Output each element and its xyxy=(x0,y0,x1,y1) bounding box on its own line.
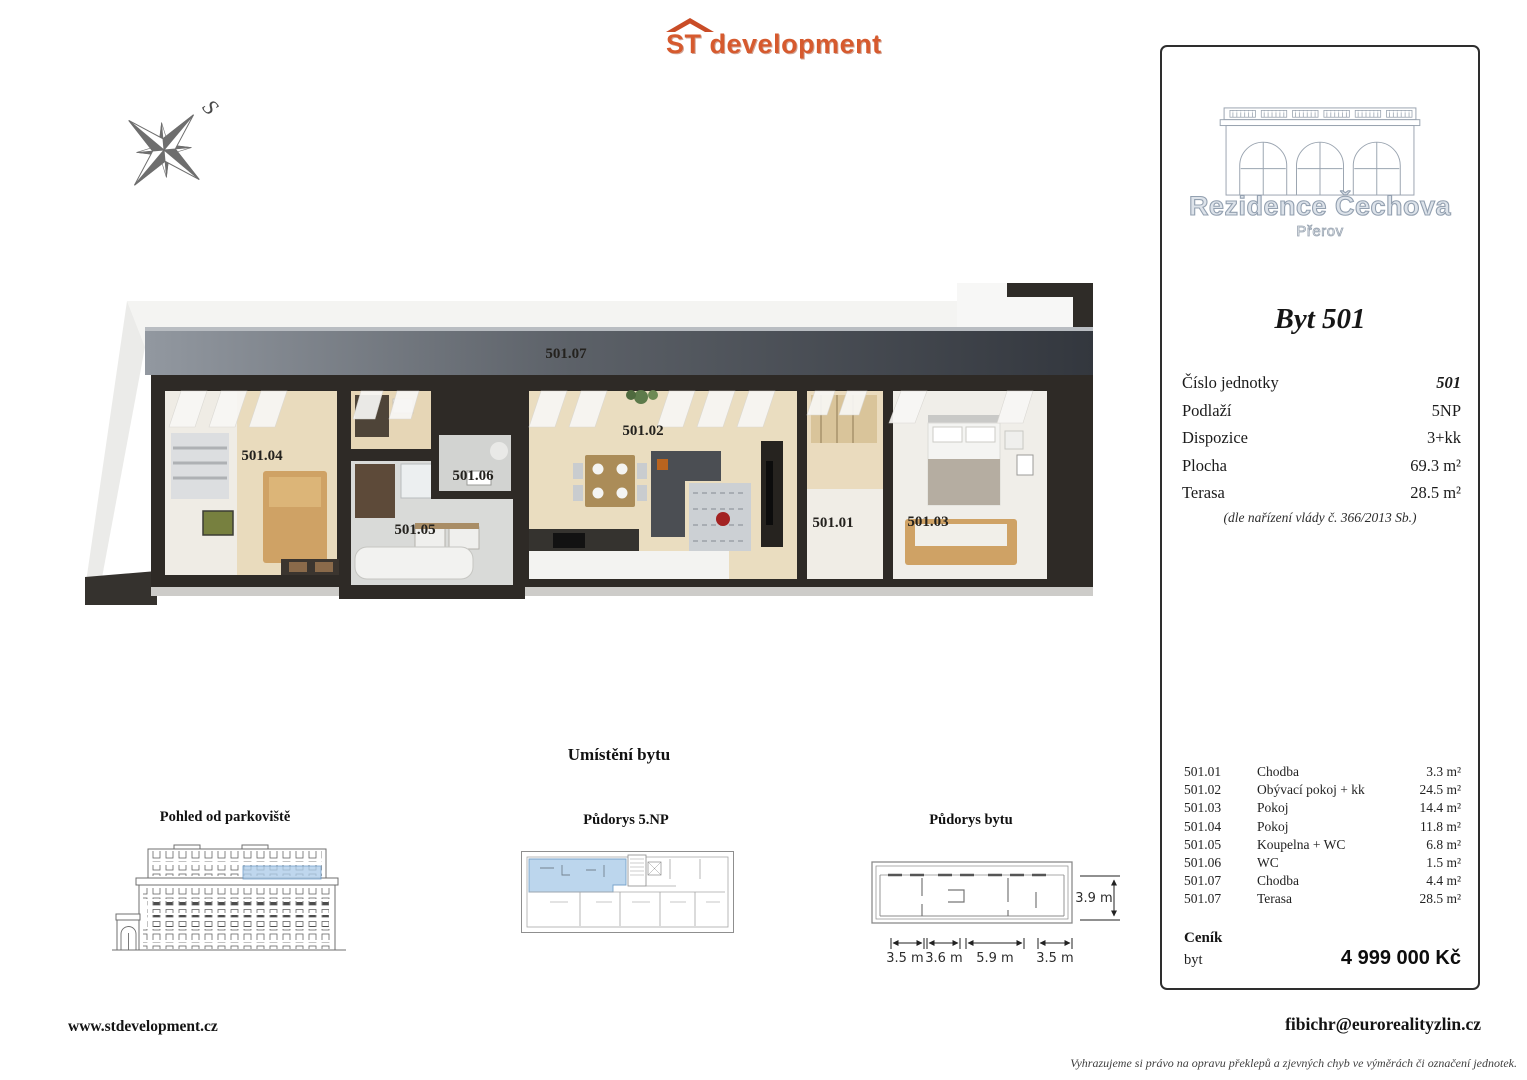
unit-details: Číslo jednotky 501 Podlaží 5NP Dispozice… xyxy=(1182,369,1461,507)
room-name: Koupelna + WC xyxy=(1257,836,1426,854)
room-code: 501.02 xyxy=(1184,781,1257,799)
apartment-highlight-elevation xyxy=(243,866,321,879)
logo-text: ST development xyxy=(666,29,882,60)
room-name: Chodba xyxy=(1257,872,1426,890)
detail-row: Dispozice 3+kk xyxy=(1182,424,1461,452)
room-name: Obývací pokoj + kk xyxy=(1257,781,1419,799)
detail-row: Podlaží 5NP xyxy=(1182,397,1461,425)
room-501-01 xyxy=(807,391,883,579)
detail-value: 5NP xyxy=(1432,397,1461,425)
residence-facade-icon xyxy=(1212,105,1428,197)
room-name: Pokoj xyxy=(1257,818,1420,836)
detail-value: 501 xyxy=(1436,369,1461,397)
detail-label: Plocha xyxy=(1182,452,1227,480)
floor5-title: Půdorys 5.NP xyxy=(540,812,712,829)
room-row: 501.02 Obývací pokoj + kk 24.5 m² xyxy=(1184,781,1461,799)
room-list: 501.01 Chodba 3.3 m² 501.02 Obývací poko… xyxy=(1184,763,1461,909)
elevation-title: Pohled od parkoviště xyxy=(118,809,332,826)
room-area: 14.4 m² xyxy=(1419,799,1461,817)
dim-width-1: 3.5 m xyxy=(886,951,923,966)
label-501-05: 501.05 xyxy=(394,522,435,538)
regulation-note: (dle nařízení vlády č. 366/2013 Sb.) xyxy=(1162,510,1478,526)
unit-title: Byt 501 xyxy=(1162,303,1478,336)
room-code: 501.06 xyxy=(1184,854,1257,872)
room-row: 501.07 Chodba 4.4 m² xyxy=(1184,872,1461,890)
detail-row: Plocha 69.3 m² xyxy=(1182,452,1461,480)
dim-height: 3.9 m xyxy=(1075,891,1112,906)
detail-value: 28.5 m² xyxy=(1410,479,1461,507)
detail-value: 69.3 m² xyxy=(1410,452,1461,480)
room-name: Terasa xyxy=(1257,890,1419,908)
room-area: 11.8 m² xyxy=(1420,818,1461,836)
label-501-04: 501.04 xyxy=(241,448,283,464)
location-section-title: Umístění bytu xyxy=(538,745,700,765)
room-row: 501.06 WC 1.5 m² xyxy=(1184,854,1461,872)
room-row: 501.07 Terasa 28.5 m² xyxy=(1184,890,1461,908)
room-area: 24.5 m² xyxy=(1419,781,1461,799)
dim-width-4: 3.5 m xyxy=(1036,951,1073,966)
floor5-plan-diagram xyxy=(520,850,745,936)
room-row: 501.03 Pokoj 14.4 m² xyxy=(1184,799,1461,817)
dim-width-2: 3.6 m xyxy=(925,951,962,966)
price-item: byt xyxy=(1184,952,1203,969)
room-name: Chodba xyxy=(1257,763,1426,781)
detail-label: Dispozice xyxy=(1182,424,1248,452)
detail-row: Terasa 28.5 m² xyxy=(1182,479,1461,507)
floorplan-3d: 501.07 501.04 501.06 501.05 501.02 501.0… xyxy=(85,283,1100,605)
website-link[interactable]: www.stdevelopment.cz xyxy=(68,1018,218,1036)
detail-label: Číslo jednotky xyxy=(1182,369,1279,397)
detail-label: Podlaží xyxy=(1182,397,1232,425)
room-row: 501.05 Koupelna + WC 6.8 m² xyxy=(1184,836,1461,854)
price-title: Ceník xyxy=(1184,929,1461,947)
detail-value: 3+kk xyxy=(1427,424,1461,452)
room-area: 28.5 m² xyxy=(1419,890,1461,908)
price-value: 4 999 000 Kč xyxy=(1341,947,1461,970)
detail-label: Terasa xyxy=(1182,479,1225,507)
email-link[interactable]: fibichr@eurorealityzlin.cz xyxy=(1285,1014,1481,1035)
logo-rest: development xyxy=(710,29,882,59)
room-code: 501.03 xyxy=(1184,799,1257,817)
room-name: Pokoj xyxy=(1257,799,1419,817)
room-code: 501.01 xyxy=(1184,763,1257,781)
room-area: 6.8 m² xyxy=(1426,836,1461,854)
room-area: 4.4 m² xyxy=(1426,872,1461,890)
project-city: Přerov xyxy=(1162,223,1478,240)
compass-north-label: S xyxy=(198,95,224,120)
label-501-01: 501.01 xyxy=(812,515,853,531)
terrace-strip xyxy=(145,327,1093,375)
compass-rose-icon: S xyxy=(112,88,232,200)
room-code: 501.04 xyxy=(1184,818,1257,836)
disclaimer-text: Vyhrazujeme si právo na opravu překlepů … xyxy=(1070,1056,1517,1071)
room-row: 501.04 Pokoj 11.8 m² xyxy=(1184,818,1461,836)
st-development-logo: ST development xyxy=(666,16,906,64)
label-501-03: 501.03 xyxy=(907,514,948,530)
dim-width-3: 5.9 m xyxy=(976,951,1013,966)
unit-info-panel: Rezidence Čechova Přerov Byt 501 Číslo j… xyxy=(1160,45,1480,990)
room-code: 501.05 xyxy=(1184,836,1257,854)
room-name: WC xyxy=(1257,854,1426,872)
unit-plan-diagram: 3.5 m 3.6 m 5.9 m 3.5 m 3.9 m xyxy=(858,850,1130,972)
room-code: 501.07 xyxy=(1184,890,1257,908)
label-501-02: 501.02 xyxy=(622,423,663,439)
price-row: byt 4 999 000 Kč xyxy=(1184,947,1461,970)
unitplan-title: Půdorys bytu xyxy=(884,812,1058,829)
room-code: 501.07 xyxy=(1184,872,1257,890)
floorplan-3d-render: 501.07 501.04 501.06 501.05 501.02 501.0… xyxy=(85,283,1100,605)
logo-st: ST xyxy=(666,29,702,59)
slab-edge xyxy=(151,587,1093,596)
room-row: 501.01 Chodba 3.3 m² xyxy=(1184,763,1461,781)
room-501-06 xyxy=(431,427,519,499)
room-area: 3.3 m² xyxy=(1426,763,1461,781)
label-501-07: 501.07 xyxy=(545,346,587,362)
building-elevation-diagram xyxy=(112,836,352,968)
detail-row: Číslo jednotky 501 xyxy=(1182,369,1461,397)
room-area: 1.5 m² xyxy=(1426,854,1461,872)
apartment-highlight-floorplan xyxy=(529,859,626,892)
pricing-section: Ceník byt 4 999 000 Kč xyxy=(1184,929,1461,970)
label-501-06: 501.06 xyxy=(452,468,494,484)
project-name: Rezidence Čechova xyxy=(1162,191,1478,222)
